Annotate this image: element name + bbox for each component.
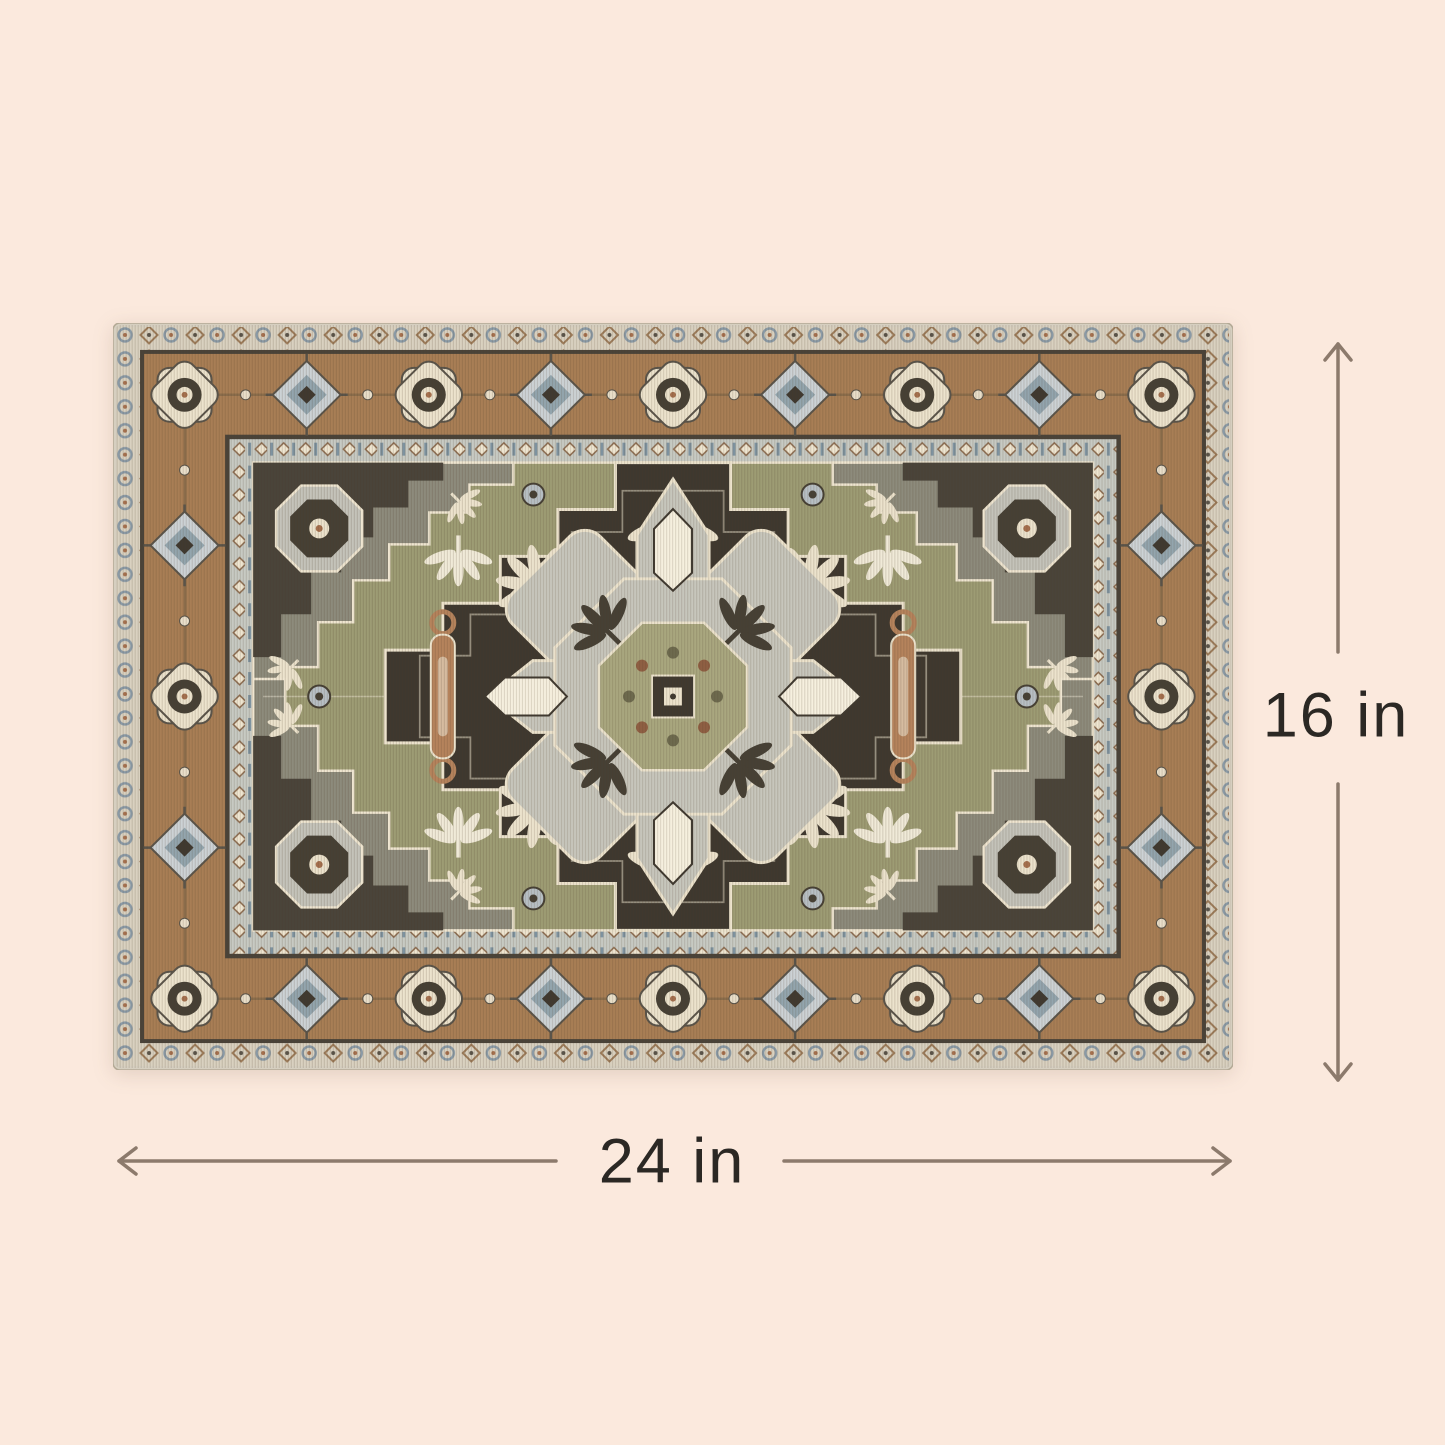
width-dimension-label: 24 in bbox=[599, 1131, 746, 1194]
product-dimension-image: 16 in 24 in bbox=[0, 0, 1445, 1445]
arrow-up-icon bbox=[1325, 344, 1351, 360]
height-dimension-label: 16 in bbox=[1263, 685, 1410, 748]
arrow-down-icon bbox=[1325, 1064, 1351, 1080]
arrow-left-icon bbox=[119, 1148, 136, 1174]
rug-image bbox=[113, 323, 1233, 1070]
rug-texture-overlay bbox=[115, 325, 1231, 1068]
rug-graphic bbox=[113, 323, 1233, 1070]
arrow-right-icon bbox=[1213, 1148, 1230, 1174]
